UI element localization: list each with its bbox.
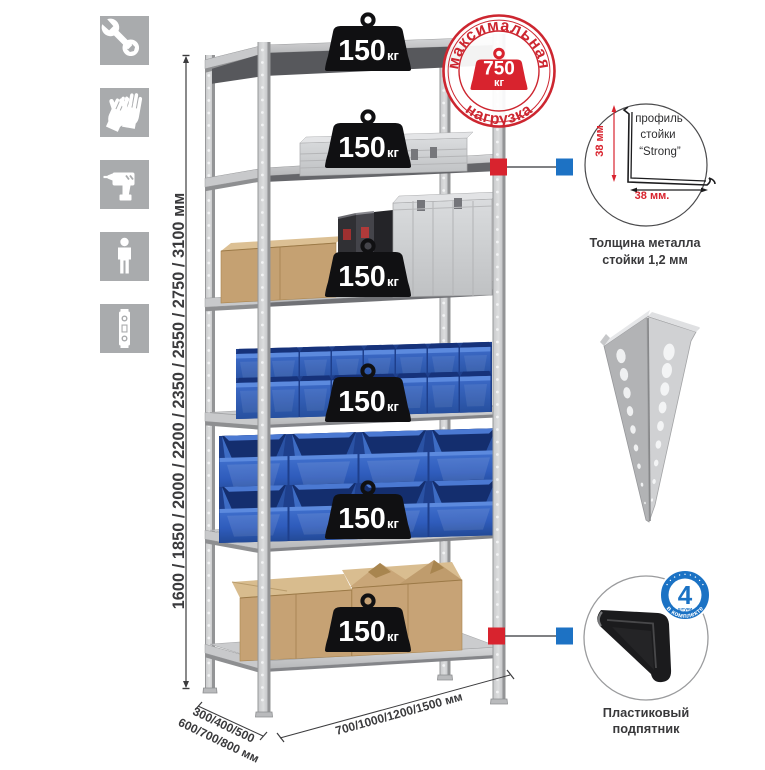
svg-text:“Strong”: “Strong”: [639, 146, 681, 158]
svg-text:подпятник: подпятник: [613, 721, 681, 736]
svg-text:профиль: профиль: [635, 113, 683, 125]
svg-text:Толщина металла: Толщина металла: [589, 236, 701, 250]
svg-text:38 мм: 38 мм: [594, 125, 606, 157]
svg-text:38 мм.: 38 мм.: [635, 190, 670, 202]
svg-text:кг: кг: [494, 77, 505, 89]
svg-text:штуки: штуки: [678, 608, 693, 613]
svg-text:стойки 1,2 мм: стойки 1,2 мм: [602, 253, 688, 267]
svg-text:Пластиковый: Пластиковый: [603, 705, 689, 720]
svg-text:стойки: стойки: [640, 129, 675, 141]
svg-text:4: 4: [678, 580, 693, 610]
svg-text:1600 / 1850 / 2000 / 2200 / 23: 1600 / 1850 / 2000 / 2200 / 2350 / 2550 …: [170, 193, 188, 610]
